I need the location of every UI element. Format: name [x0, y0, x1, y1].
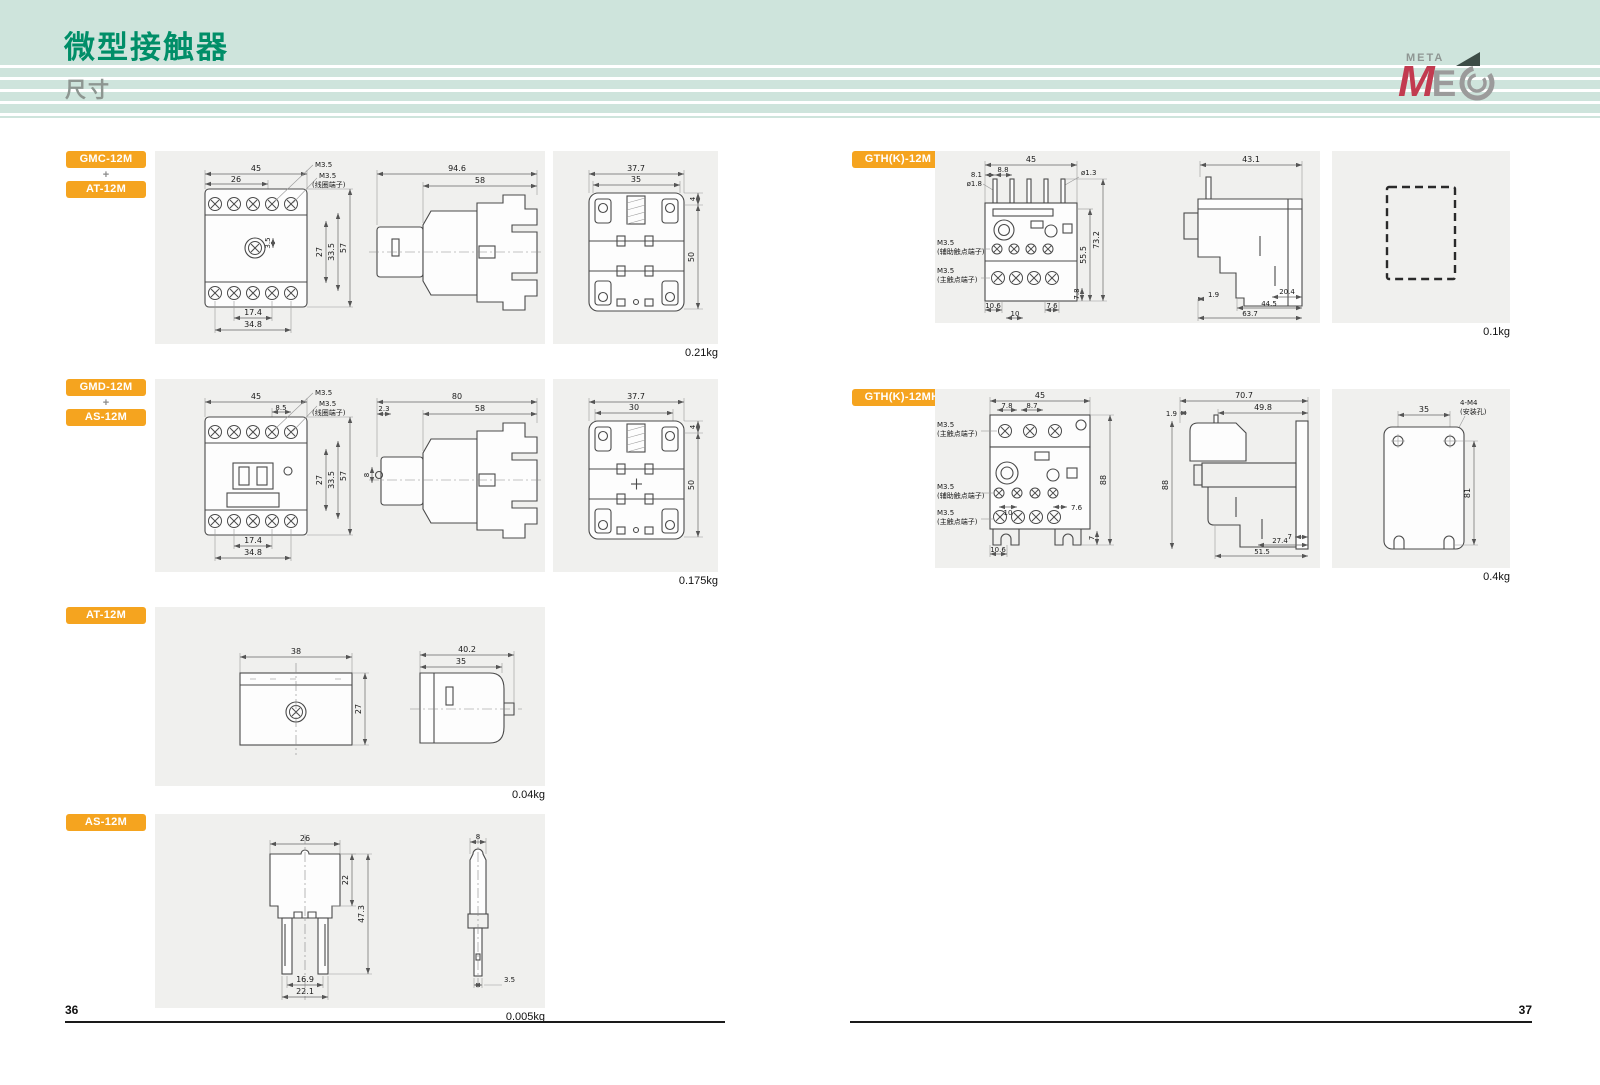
as-drawing-panel: 26 22 47.3 16.9 22.1 — [155, 814, 545, 1008]
mec-logo: META ME — [1396, 50, 1526, 110]
dim-label: 10 — [1011, 310, 1020, 318]
as-front-side-drawing: 26 22 47.3 16.9 22.1 — [155, 814, 545, 1008]
dim-label: 73.2 — [1092, 231, 1101, 249]
dim-label: 80 — [452, 392, 462, 401]
thread-note: M3.5 — [937, 267, 954, 275]
weight-gth12mh: 0.4kg — [1332, 571, 1510, 583]
dim-label: 33.5 — [327, 243, 336, 261]
dim-label: 43.1 — [1242, 155, 1260, 164]
dim-label: 4 — [689, 424, 697, 429]
dim-label: 1.9 — [1208, 291, 1219, 299]
aux-terminal-note: (辅助触点端子) — [937, 247, 985, 256]
gmd-as-drawing-panel: 45 8.5 M3.5 M3.5 (线圈端子) 57 — [155, 379, 545, 572]
dim-label: 17.4 — [244, 308, 262, 317]
dim-label: 8.5 — [275, 404, 286, 412]
dim-label: 8.8 — [997, 166, 1008, 174]
dim-label: 57 — [339, 243, 348, 253]
main-terminal-note: (主触点端子) — [937, 517, 978, 526]
gth12mh-mounting-plate-drawing: 35 4-M4 (安装孔) 81 — [1332, 389, 1510, 568]
dim-label: 55.5 — [1079, 246, 1088, 264]
main-terminal-note: (主触点端子) — [937, 275, 978, 284]
dim-label: 3.5 — [264, 237, 272, 248]
dim-label: 47.3 — [357, 905, 366, 923]
thread-note: M3.5 — [937, 421, 954, 429]
dim-label: 50 — [687, 480, 696, 490]
plus-sign: + — [66, 169, 146, 181]
dim-label: 45 — [1035, 391, 1045, 400]
dim-label: 27 — [315, 475, 324, 485]
logo-e: E — [1432, 63, 1457, 104]
dim-label: 7 — [1288, 533, 1292, 541]
product-label-at-12m-solo: AT-12M — [66, 607, 146, 624]
weight-gth12m: 0.1kg — [1332, 326, 1510, 338]
weight-at: 0.04kg — [155, 789, 545, 801]
dim-label: 37.7 — [627, 164, 645, 173]
dim-label: 57 — [339, 471, 348, 481]
dim-label: 50 — [687, 252, 696, 262]
dim-label: ø1.8 — [967, 180, 982, 188]
dim-label: 27 — [315, 247, 324, 257]
dim-label: 8.7 — [1026, 402, 1037, 410]
at-drawing-panel: 38 27 40.2 35 — [155, 607, 545, 786]
logo-letters: ME — [1398, 58, 1498, 106]
gmc-rear-panel: 37.7 35 4 50 — [553, 151, 718, 344]
thread-note: M3.5 — [315, 161, 332, 169]
aux-terminal-note: (辅助触点端子) — [937, 491, 985, 500]
dim-label: 35 — [456, 657, 466, 666]
at-front-side-drawing: 38 27 40.2 35 — [155, 607, 545, 786]
gmd-rear-drawing: 37.7 30 4 50 — [553, 379, 718, 572]
dim-label: 22 — [341, 875, 350, 885]
gmc-rear-drawing: 37.7 35 4 50 — [553, 151, 718, 344]
dim-label: 94.6 — [448, 164, 466, 173]
product-label-gmd-12m: GMD-12M — [66, 379, 146, 396]
gmd-rear-panel: 37.7 30 4 50 — [553, 379, 718, 572]
dim-label: 8 — [363, 473, 371, 477]
dim-label: 37.7 — [627, 392, 645, 401]
mounting-note: 4-M4 — [1460, 399, 1478, 407]
header-band: 微型接触器 尺寸 META ME — [0, 0, 1600, 118]
gmc-side-view: 94.6 58 — [369, 164, 543, 310]
gth12m-drawing-panel: 45 8.1 ø1.8 8.8 ø1.3 M3.5 (辅助触点端子) — [935, 151, 1320, 323]
logo-m: M — [1398, 57, 1435, 106]
mounting-hole-note: (安装孔) — [1460, 407, 1487, 416]
at-side-view: 40.2 35 — [410, 645, 522, 743]
logo-c-arc-icon — [1456, 60, 1498, 104]
dim-label: 20.4 — [1279, 288, 1295, 296]
dim-label: 10.6 — [990, 546, 1006, 554]
at-front-view: 38 27 — [240, 647, 369, 755]
gth12m-front-view: 45 8.1 ø1.8 8.8 ø1.3 M3.5 (辅助触点端子) — [937, 155, 1107, 318]
weight-gmc-at: 0.21kg — [553, 347, 718, 359]
dim-label: 88 — [1099, 475, 1108, 485]
gth12m-side-view: 43.1 1.9 20.4 44.5 63.7 — [1184, 155, 1302, 321]
page-number-left: 36 — [65, 1003, 78, 1017]
gmd-as-front-side-drawing: 45 8.5 M3.5 M3.5 (线圈端子) 57 — [155, 379, 545, 572]
dim-label: 38 — [291, 647, 301, 656]
dim-label: 34.8 — [244, 548, 262, 557]
page-title: 微型接触器 — [64, 22, 229, 67]
gth12mh-drawing-panel: 45 7.8 8.7 M3.5 (主触点端子) M3.5 — [935, 389, 1320, 568]
thread-note: M3.5 — [315, 389, 332, 397]
dim-label: 10.6 — [985, 302, 1001, 310]
dim-label: 51.5 — [1254, 548, 1270, 556]
dim-label: 30 — [629, 403, 639, 412]
gmc-at-drawing-panel: 45 26 M3.5 M3.5 (线圈端子) 3.5 57 — [155, 151, 545, 344]
thread-note: M3.5 — [937, 239, 954, 247]
product-label-gthk-12m: GTH(K)-12M — [852, 151, 944, 168]
dim-label: 33.5 — [327, 471, 336, 489]
dim-label: 3.5 — [504, 976, 515, 984]
dim-label: 8.1 — [971, 171, 982, 179]
dim-label: ø1.3 — [1081, 169, 1096, 177]
dim-label: 58 — [475, 176, 485, 185]
dim-label: 88 — [1161, 480, 1170, 490]
weight-gmd-as: 0.175kg — [553, 575, 718, 587]
gmd-front-view: 45 8.5 M3.5 M3.5 (线圈端子) 57 — [205, 389, 353, 561]
gth12m-cutout-panel — [1332, 151, 1510, 323]
dim-label: 45 — [1026, 155, 1036, 164]
gth12m-front-side-drawing: 45 8.1 ø1.8 8.8 ø1.3 M3.5 (辅助触点端子) — [935, 151, 1320, 323]
gmc-front-view: 45 26 M3.5 M3.5 (线圈端子) 3.5 57 — [205, 161, 353, 333]
main-terminal-note: (主触点端子) — [937, 429, 978, 438]
gth12mh-front-side-drawing: 45 7.8 8.7 M3.5 (主触点端子) M3.5 — [935, 389, 1320, 568]
product-label-at-12m: AT-12M — [66, 181, 146, 198]
dim-label: 1.9 — [1166, 410, 1177, 418]
dim-label: 81 — [1463, 488, 1472, 498]
dim-label: 17.4 — [244, 536, 262, 545]
dim-label: 58 — [475, 404, 485, 413]
gmd-side-view: 80 2.3 58 8 — [363, 392, 543, 538]
dim-label: 45 — [251, 392, 261, 401]
dim-label: 7.6 — [1071, 504, 1083, 512]
product-label-as-12m-solo: AS-12M — [66, 814, 146, 831]
thread-note: M3.5 — [319, 172, 336, 180]
dim-label: 44.5 — [1261, 300, 1277, 308]
thread-note: M3.5 — [937, 483, 954, 491]
coil-terminal-note: (线圈端子) — [312, 408, 346, 417]
dim-label: 22.1 — [296, 987, 314, 996]
page-subtitle: 尺寸 — [65, 74, 111, 104]
product-label-gmc-12m: GMC-12M — [66, 151, 146, 168]
catalog-page: 微型接触器 尺寸 META ME GMC-12M + AT-12M 45 — [0, 0, 1600, 1085]
gmc-at-front-side-drawing: 45 26 M3.5 M3.5 (线圈端子) 3.5 57 — [155, 151, 545, 344]
dim-label: 27.4 — [1272, 537, 1288, 545]
thread-note: M3.5 — [319, 400, 336, 408]
dim-label: 7.8 — [1073, 288, 1081, 299]
thread-note: M3.5 — [937, 509, 954, 517]
gth12mh-plate-panel: 35 4-M4 (安装孔) 81 — [1332, 389, 1510, 568]
coil-terminal-note: (线圈端子) — [312, 180, 346, 189]
dim-label: 2.3 — [378, 405, 389, 413]
product-label-as-12m: AS-12M — [66, 409, 146, 426]
dim-label: 10 — [1004, 509, 1013, 517]
dim-label: 40.2 — [458, 645, 476, 654]
dim-label: 35 — [1419, 405, 1429, 414]
dim-label: 7.6 — [1046, 302, 1058, 310]
dim-label: 49.8 — [1254, 403, 1272, 412]
dim-label: 63.7 — [1242, 310, 1258, 318]
page-number-right: 37 — [1490, 1003, 1532, 1017]
footer-rule-right — [850, 1021, 1532, 1023]
as-front-view: 26 22 47.3 16.9 22.1 — [270, 834, 372, 1000]
gth12mh-side-view: 70.7 1.9 49.8 88 7 27.4 — [1161, 391, 1308, 559]
as-side-view: 8 3.5 — [468, 833, 515, 990]
dim-label: 26 — [231, 175, 241, 184]
header-stripes — [0, 56, 1600, 118]
footer-rule-left — [65, 1021, 725, 1023]
dim-label: 7 — [1088, 536, 1096, 540]
dim-label: 7.8 — [1001, 402, 1012, 410]
dim-label: 34.8 — [244, 320, 262, 329]
gth12m-panel-cutout-drawing — [1332, 151, 1510, 323]
gth12mh-front-view: 45 7.8 8.7 M3.5 (主触点端子) M3.5 — [937, 391, 1114, 557]
dim-label: 16.9 — [296, 975, 314, 984]
dim-label: 70.7 — [1235, 391, 1253, 400]
dim-label: 27 — [354, 704, 363, 714]
dim-label: 4 — [689, 196, 697, 201]
dim-label: 35 — [631, 175, 641, 184]
plus-sign: + — [66, 397, 146, 409]
dim-label: 45 — [251, 164, 261, 173]
